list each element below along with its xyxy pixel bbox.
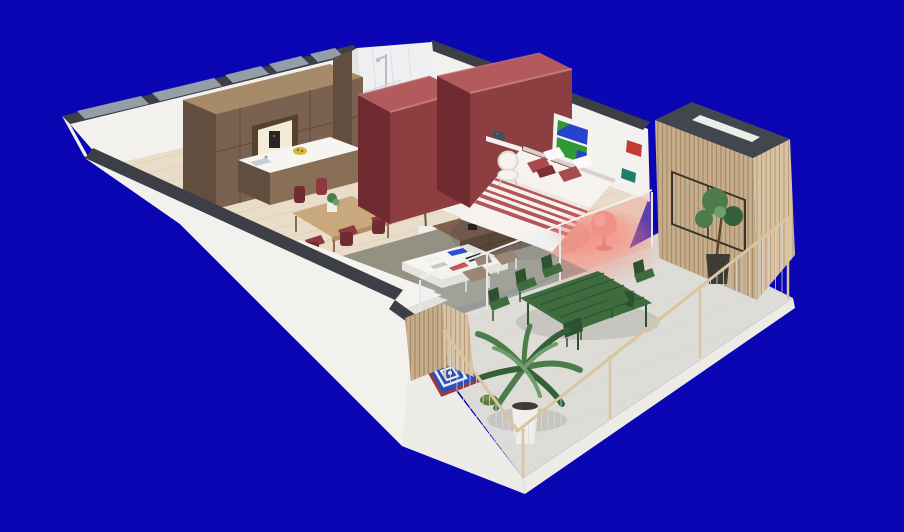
apartment-floorplan-3d: [0, 0, 904, 532]
rattan-chair: [498, 152, 518, 187]
fruit-bowl: [293, 147, 307, 155]
render-canvas: [0, 0, 904, 532]
